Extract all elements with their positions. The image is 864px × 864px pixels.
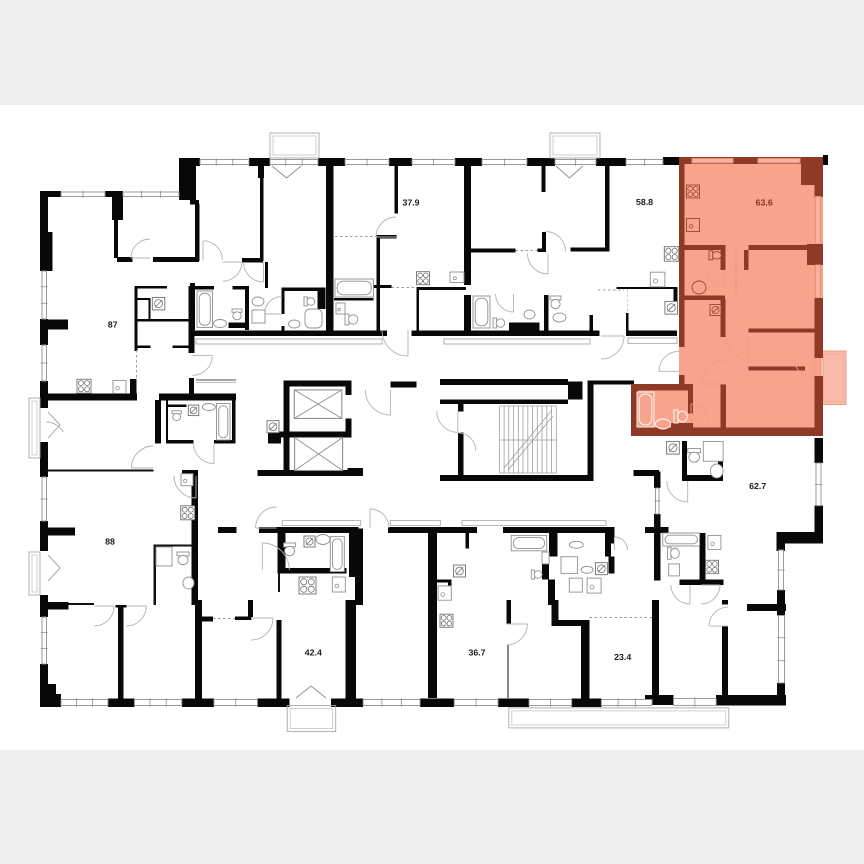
svg-text:36.7: 36.7 [468, 648, 485, 658]
svg-text:58.8: 58.8 [636, 197, 653, 207]
svg-text:62.7: 62.7 [749, 481, 766, 491]
svg-text:88: 88 [105, 537, 115, 547]
svg-text:87: 87 [108, 319, 118, 329]
svg-text:63.6: 63.6 [756, 197, 773, 207]
svg-text:37.9: 37.9 [402, 198, 419, 208]
svg-text:23.4: 23.4 [614, 652, 631, 662]
svg-text:42.4: 42.4 [305, 648, 322, 658]
